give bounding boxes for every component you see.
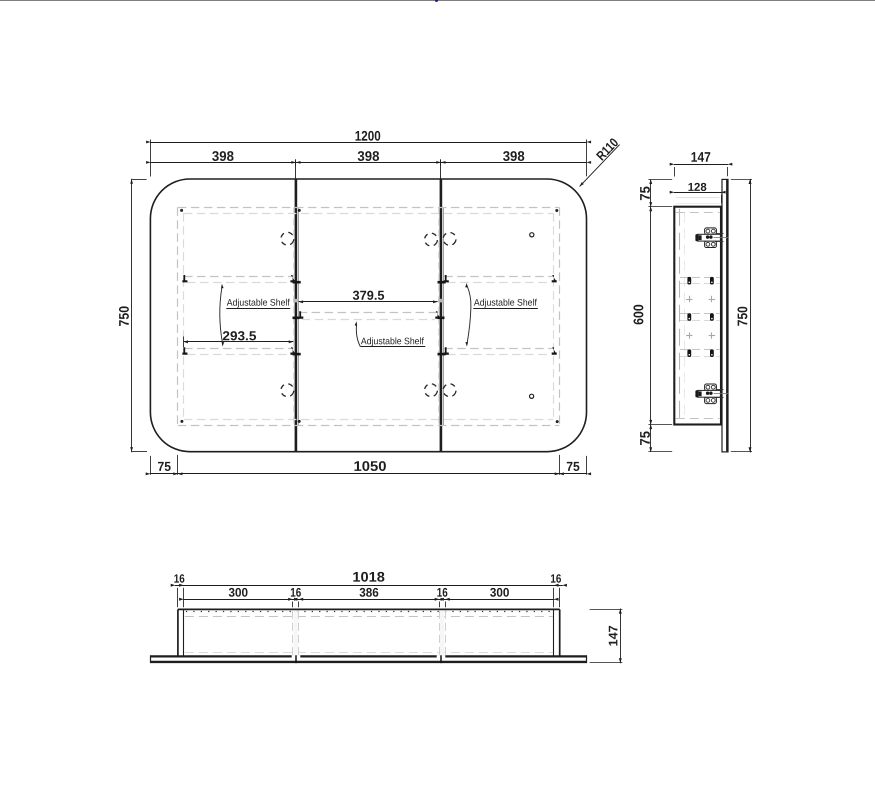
svg-text:750: 750 xyxy=(734,306,750,326)
svg-text:16: 16 xyxy=(550,572,561,586)
svg-text:750: 750 xyxy=(116,306,132,327)
svg-text:Adjustable Shelf: Adjustable Shelf xyxy=(361,336,424,347)
svg-text:1200: 1200 xyxy=(355,128,381,144)
svg-text:147: 147 xyxy=(691,149,711,165)
svg-text:75: 75 xyxy=(637,431,653,446)
svg-text:398: 398 xyxy=(503,148,525,164)
svg-text:1018: 1018 xyxy=(352,569,385,585)
svg-text:300: 300 xyxy=(490,586,510,600)
svg-text:75: 75 xyxy=(566,459,580,474)
svg-text:Adjustable Shelf: Adjustable Shelf xyxy=(227,298,290,309)
svg-text:147: 147 xyxy=(606,625,620,646)
svg-text:75: 75 xyxy=(637,186,653,201)
svg-text:600: 600 xyxy=(630,304,646,325)
svg-text:75: 75 xyxy=(157,459,171,474)
svg-text:398: 398 xyxy=(357,148,379,164)
svg-text:128: 128 xyxy=(688,182,708,194)
svg-text:300: 300 xyxy=(228,586,248,600)
svg-text:386: 386 xyxy=(359,586,379,600)
svg-text:1050: 1050 xyxy=(353,458,386,474)
svg-text:16: 16 xyxy=(437,586,448,600)
svg-text:Adjustable Shelf: Adjustable Shelf xyxy=(474,298,537,309)
svg-text:379.5: 379.5 xyxy=(352,288,384,303)
svg-text:293.5: 293.5 xyxy=(222,328,256,343)
svg-text:16: 16 xyxy=(290,586,301,600)
svg-text:398: 398 xyxy=(212,148,234,164)
svg-text:16: 16 xyxy=(174,572,185,586)
